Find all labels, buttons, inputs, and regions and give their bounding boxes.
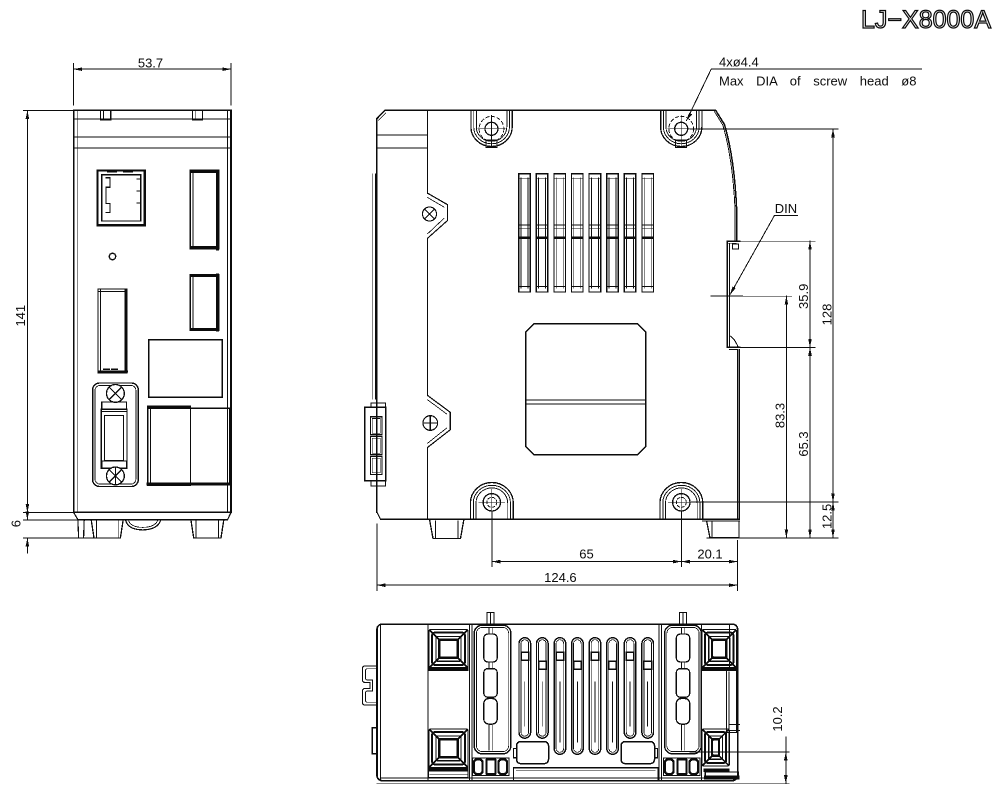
svg-text:128: 128 bbox=[820, 304, 835, 326]
svg-text:83.3: 83.3 bbox=[773, 403, 788, 428]
svg-text:141: 141 bbox=[13, 305, 28, 327]
svg-text:124.6: 124.6 bbox=[544, 570, 577, 585]
svg-text:20.1: 20.1 bbox=[697, 547, 722, 562]
svg-text:35.9: 35.9 bbox=[796, 284, 811, 309]
svg-text:12.5: 12.5 bbox=[820, 504, 835, 529]
svg-text:Max DIA of screw head ø8: Max DIA of screw head ø8 bbox=[719, 74, 916, 89]
svg-text:6: 6 bbox=[9, 520, 24, 527]
svg-text:LJ−X8000A: LJ−X8000A bbox=[861, 6, 991, 34]
svg-text:10.2: 10.2 bbox=[770, 706, 785, 731]
svg-text:53.7: 53.7 bbox=[138, 56, 163, 71]
svg-text:65.3: 65.3 bbox=[796, 431, 811, 456]
svg-text:4xø4.4: 4xø4.4 bbox=[719, 54, 759, 69]
svg-text:DIN: DIN bbox=[775, 201, 797, 216]
svg-text:65: 65 bbox=[579, 547, 593, 562]
